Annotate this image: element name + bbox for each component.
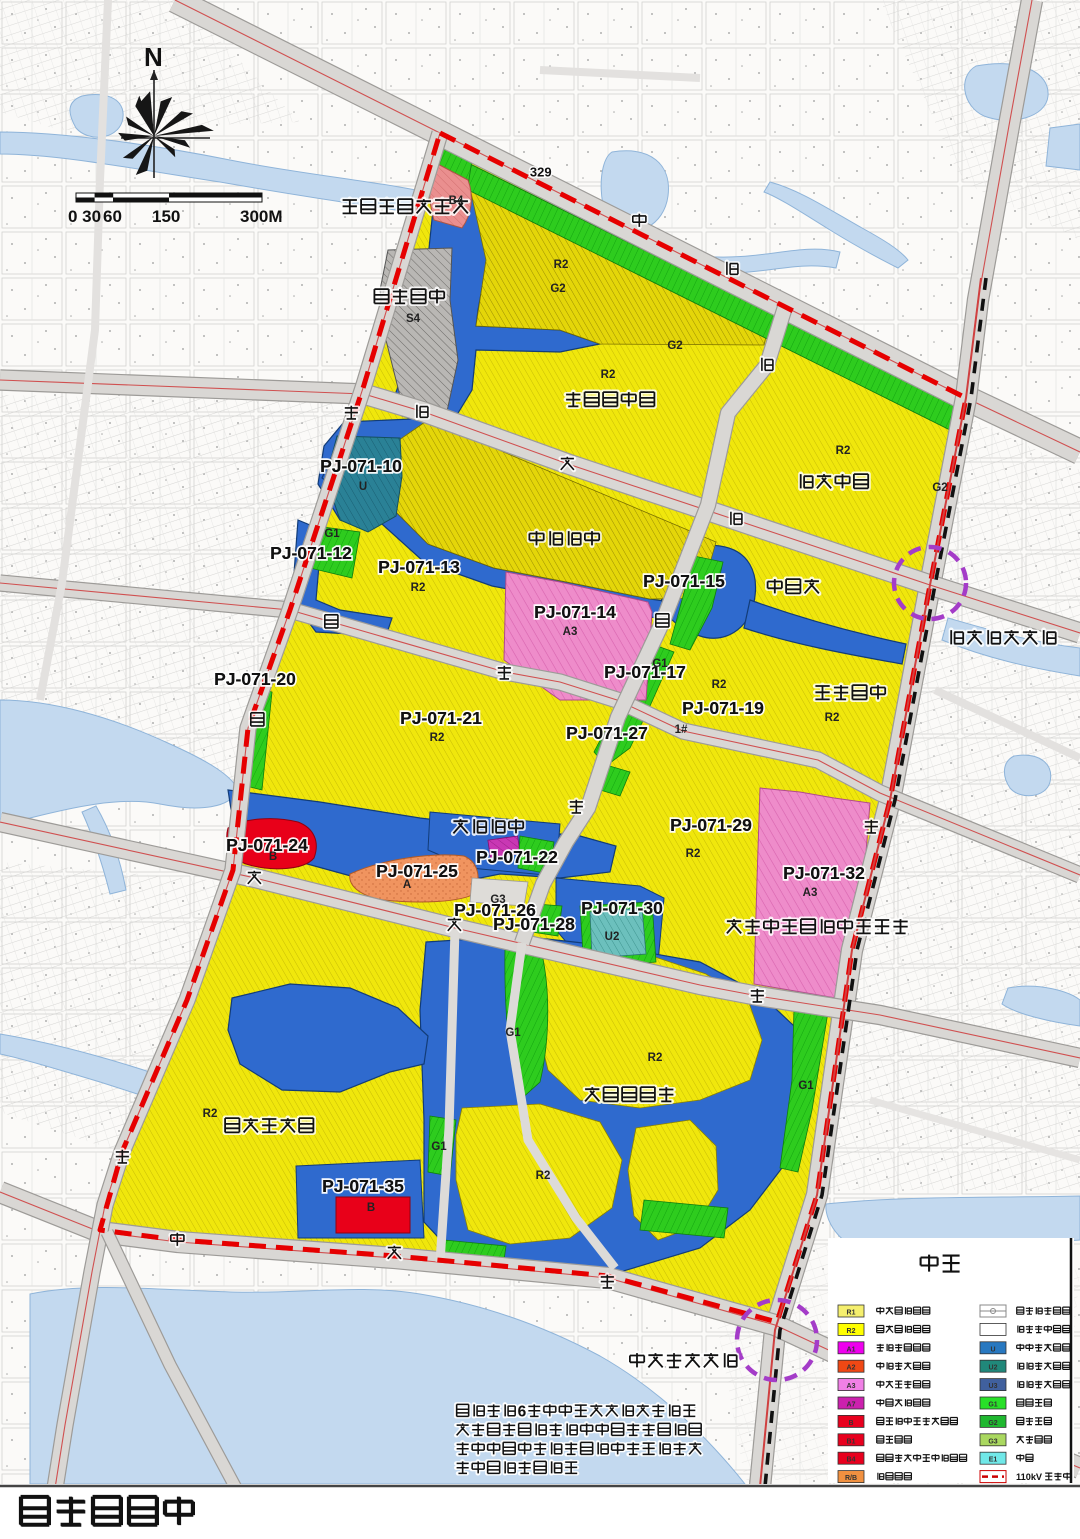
svg-text:U: U <box>990 1346 995 1353</box>
svg-text:R2: R2 <box>430 732 445 744</box>
svg-text:PJ-071-35: PJ-071-35 <box>322 1176 404 1196</box>
svg-text:PJ-071-10: PJ-071-10 <box>320 456 402 476</box>
svg-text:0 30: 0 30 <box>68 207 101 226</box>
svg-text:A3: A3 <box>803 887 818 899</box>
svg-text:R2: R2 <box>712 679 727 691</box>
svg-text:R2: R2 <box>686 848 701 860</box>
svg-text:PJ-071-12: PJ-071-12 <box>270 543 352 563</box>
svg-text:U2: U2 <box>989 1365 998 1372</box>
svg-text:110kV: 110kV <box>1016 1472 1043 1482</box>
svg-text:G1: G1 <box>505 1027 521 1039</box>
svg-text:PJ-071-21: PJ-071-21 <box>400 708 482 728</box>
svg-text:60: 60 <box>103 207 122 226</box>
svg-text:1#: 1# <box>675 724 688 736</box>
svg-text:B4: B4 <box>847 1457 856 1464</box>
svg-text:329: 329 <box>530 165 552 180</box>
svg-text:B: B <box>269 851 277 863</box>
svg-text:G3: G3 <box>490 894 505 906</box>
svg-text:U3: U3 <box>989 1383 998 1390</box>
svg-text:A1: A1 <box>847 1346 856 1353</box>
svg-text:PJ-071-24: PJ-071-24 <box>226 835 308 855</box>
svg-text:B: B <box>367 1202 375 1214</box>
svg-text:R2: R2 <box>825 712 840 724</box>
svg-text:G2: G2 <box>988 1420 997 1427</box>
svg-text:150: 150 <box>152 207 180 226</box>
svg-text:G2: G2 <box>550 283 565 295</box>
svg-text:G3: G3 <box>988 1438 997 1445</box>
svg-text:G1: G1 <box>324 528 340 540</box>
svg-text:A3: A3 <box>563 626 578 638</box>
svg-text:PJ-071-27: PJ-071-27 <box>566 723 648 743</box>
svg-text:E1: E1 <box>989 1457 998 1464</box>
svg-text:PJ-071-17: PJ-071-17 <box>604 662 686 682</box>
svg-text:A3: A3 <box>847 1383 856 1390</box>
svg-text:PJ-071-13: PJ-071-13 <box>378 557 460 577</box>
svg-text:6: 6 <box>518 1404 527 1421</box>
svg-text:U2: U2 <box>605 931 620 943</box>
svg-text:G1: G1 <box>431 1141 447 1153</box>
svg-text:R2: R2 <box>203 1108 218 1120</box>
svg-text:B1: B1 <box>847 1438 856 1445</box>
svg-text:R2: R2 <box>836 445 851 457</box>
svg-text:PJ-071-25: PJ-071-25 <box>376 861 458 881</box>
svg-text:R2: R2 <box>536 1170 551 1182</box>
svg-text:R2: R2 <box>648 1052 663 1064</box>
svg-text:R2: R2 <box>601 369 616 381</box>
svg-text:PJ-071-19: PJ-071-19 <box>682 698 764 718</box>
svg-text:PJ-071-20: PJ-071-20 <box>214 669 296 689</box>
svg-text:G1: G1 <box>798 1080 814 1092</box>
svg-text:PJ-071-28: PJ-071-28 <box>493 914 575 934</box>
svg-text:A2: A2 <box>847 1365 856 1372</box>
svg-text:A7: A7 <box>847 1402 856 1409</box>
svg-text:PJ-071-15: PJ-071-15 <box>643 571 725 591</box>
svg-text:PJ-071-22: PJ-071-22 <box>476 847 558 867</box>
svg-text:B4: B4 <box>449 195 464 207</box>
svg-text:R/B: R/B <box>845 1475 857 1482</box>
svg-text:PJ-071-32: PJ-071-32 <box>783 863 865 883</box>
svg-text:B: B <box>848 1420 853 1427</box>
svg-text:300M: 300M <box>240 207 283 226</box>
svg-text:G2: G2 <box>667 340 682 352</box>
svg-text:R2: R2 <box>847 1328 856 1335</box>
svg-text:R2: R2 <box>411 582 426 594</box>
svg-text:U: U <box>359 481 367 493</box>
svg-text:R2: R2 <box>554 259 569 271</box>
svg-text:N: N <box>144 42 163 72</box>
svg-text:R1: R1 <box>847 1310 856 1317</box>
svg-text:A: A <box>403 879 411 891</box>
svg-text:G2: G2 <box>932 482 947 494</box>
svg-text:PJ-071-29: PJ-071-29 <box>670 815 752 835</box>
svg-text:PJ-071-14: PJ-071-14 <box>534 602 616 622</box>
svg-text:S4: S4 <box>406 313 421 325</box>
svg-text:G1: G1 <box>988 1402 997 1409</box>
svg-text:PJ-071-30: PJ-071-30 <box>581 898 663 918</box>
svg-text:G1: G1 <box>652 658 668 670</box>
